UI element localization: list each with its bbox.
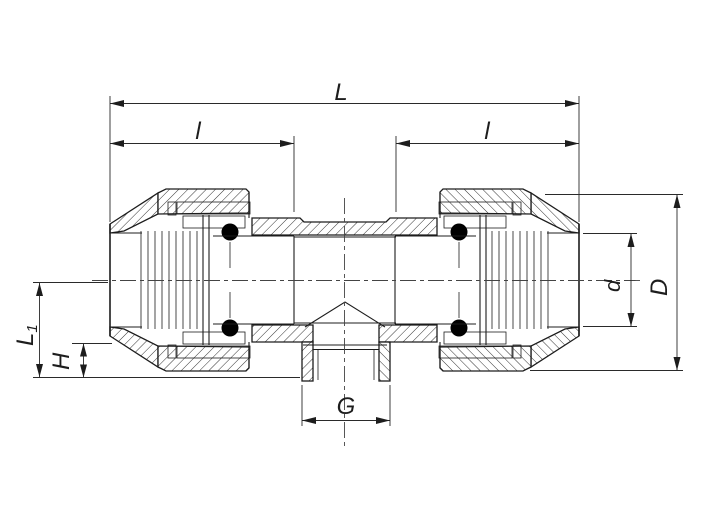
body-bottom-wall-right bbox=[379, 325, 437, 342]
body-bottom-wall-left bbox=[252, 325, 313, 342]
dimension-d: d bbox=[583, 234, 637, 327]
right-coupling-assembly bbox=[395, 189, 579, 371]
branch-wall-left bbox=[302, 342, 313, 381]
drawing-canvas: L l l L1 H G bbox=[0, 0, 704, 528]
dimension-label-l-right: l bbox=[484, 118, 490, 145]
dimension-label-D: D bbox=[646, 279, 673, 296]
fitting-section-drawing: L l l L1 H G bbox=[0, 0, 704, 528]
dimension-label-d: d bbox=[600, 279, 625, 292]
dimension-H: H bbox=[48, 344, 112, 378]
branch-wall-right bbox=[379, 342, 390, 381]
dimension-G: G bbox=[302, 385, 390, 426]
dimension-label-l-left: l bbox=[195, 118, 201, 145]
dimension-label-G: G bbox=[337, 393, 356, 420]
left-coupling-assembly bbox=[110, 189, 294, 371]
dimension-label-L1: L1 bbox=[12, 324, 41, 346]
branch-socket bbox=[302, 342, 390, 381]
dimension-label-L: L bbox=[334, 79, 347, 106]
dimension-label-H: H bbox=[48, 352, 75, 370]
